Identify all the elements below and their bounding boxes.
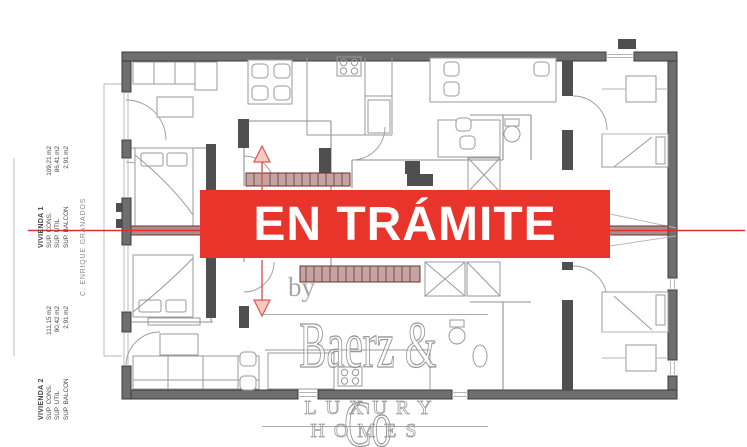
vivienda-2-title: VIVIENDA 2 (38, 306, 46, 420)
desk-lower-right (626, 345, 656, 371)
desk-upper-right (626, 76, 656, 102)
toilet-lower (450, 320, 464, 327)
dining-table-lower (268, 353, 334, 389)
vivienda-1-title: VIVIENDA 1 (38, 146, 46, 248)
vivienda-2-row-balcon: SUP. BALCON 2,91 m2 (63, 306, 71, 420)
coffee-table-lower (160, 334, 198, 355)
status-banner-text: EN TRÁMITE (253, 197, 556, 252)
vivienda-2-row-util: SUP. UTIL 90,42 m2 (54, 306, 62, 420)
status-banner: EN TRÁMITE (200, 190, 610, 258)
vivienda-2-row-cons: SUP. CONS. 111,15 m2 (46, 306, 54, 420)
vivienda-1-row-cons: SUP. CONS. 109,21 m2 (46, 146, 54, 248)
coffee-table-upper (157, 97, 193, 117)
sofa-upper (133, 62, 195, 84)
sink-lower (473, 345, 487, 367)
kitchen-counter-lower (265, 350, 430, 390)
kitchen-counter-upper (307, 58, 392, 135)
street-label: C. ENRIQUE GRANADOS (80, 198, 87, 296)
vivienda-1-row-util: SUP. UTIL 86,41 m2 (54, 146, 62, 248)
floor-plan-page: VIVIENDA 1 SUP. CONS. 109,21 m2 SUP. UTI… (0, 0, 747, 447)
toilet-upper (505, 119, 519, 126)
vivienda-2-label: VIVIENDA 2 SUP. CONS. 111,15 m2 SUP. UTI… (38, 306, 71, 420)
vivienda-1-label: VIVIENDA 1 SUP. CONS. 109,21 m2 SUP. UTI… (38, 146, 71, 248)
vent-block (618, 39, 636, 49)
vivienda-1-row-balcon: SUP. BALCON 2,91 m2 (63, 146, 71, 248)
